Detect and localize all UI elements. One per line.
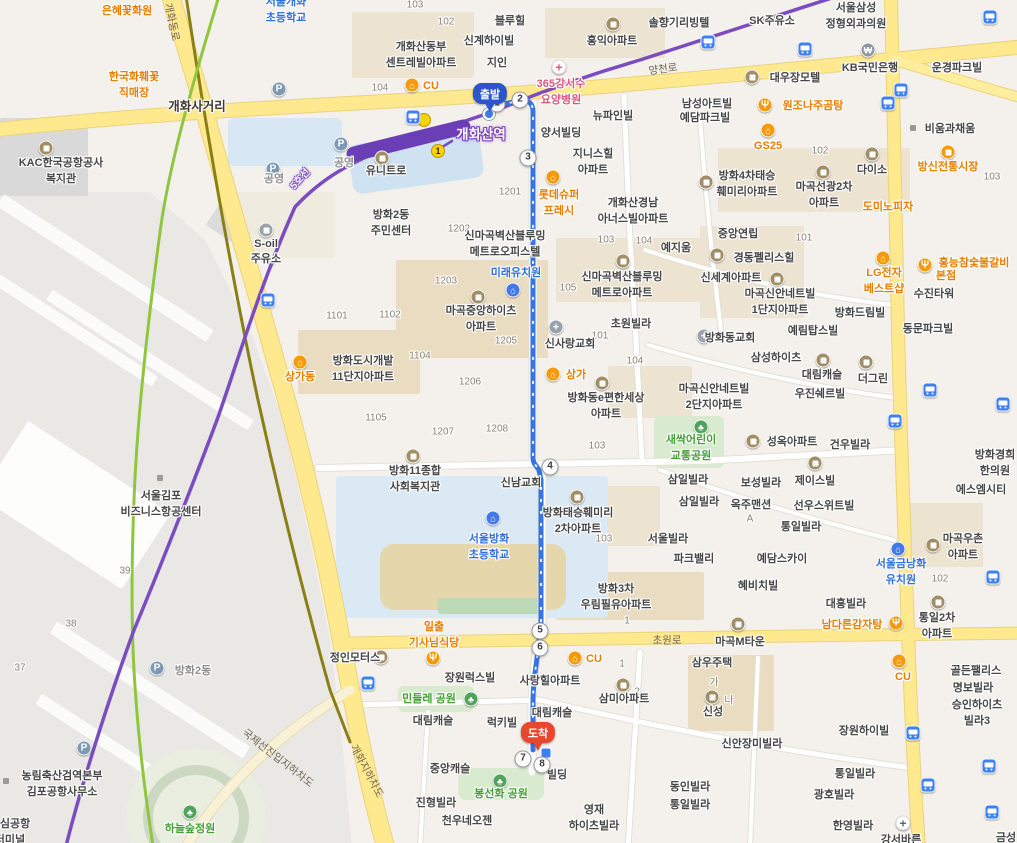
bus-icon[interactable] bbox=[798, 42, 813, 57]
bus-icon[interactable] bbox=[894, 83, 909, 98]
shop-icon[interactable]: ⌂ bbox=[405, 78, 420, 93]
map-label[interactable]: 명보빌라 bbox=[953, 679, 993, 695]
map-label[interactable]: 방화4차태승 훼미리아파트 bbox=[717, 167, 778, 199]
map-label[interactable]: KB국민은행 bbox=[842, 59, 898, 75]
shop-icon[interactable]: ⌂ bbox=[546, 170, 561, 185]
district-label: 공영 bbox=[264, 170, 284, 186]
map-label[interactable]: 경동펠리스힐 bbox=[734, 249, 795, 265]
bus-icon[interactable] bbox=[983, 10, 998, 25]
street bbox=[628, 652, 640, 843]
map-label[interactable]: 봉선화 공원 bbox=[474, 785, 528, 801]
map-label[interactable]: 홍익아파트 bbox=[587, 32, 638, 48]
map-label[interactable]: 파크밸리 bbox=[674, 550, 714, 566]
lot-number-label: 102 bbox=[438, 17, 455, 28]
map-label[interactable]: 도미노피자 bbox=[863, 198, 914, 214]
map-label[interactable]: 서울김포 비즈니스항공센터 bbox=[121, 487, 202, 519]
map-label[interactable]: 지인 bbox=[487, 54, 507, 70]
map-label[interactable]: 대림캐슬 bbox=[532, 704, 572, 720]
bus-icon[interactable] bbox=[986, 570, 1001, 585]
map-label[interactable]: 방화2동 주민센터 bbox=[371, 206, 411, 238]
hosp-icon[interactable]: + bbox=[552, 60, 567, 75]
map-label[interactable]: 마곡중앙하이츠 아파트 bbox=[446, 302, 517, 334]
lot-number-label: 102 bbox=[812, 146, 829, 157]
map-label[interactable]: 통일빌라 bbox=[781, 518, 821, 534]
bus-icon[interactable] bbox=[888, 414, 903, 429]
map-label[interactable]: 옥주맨션 bbox=[731, 496, 771, 512]
map-label[interactable]: 신마곡벽산블루밍 메트로아파트 bbox=[582, 268, 663, 300]
map-label[interactable]: 에스엠시티 bbox=[956, 481, 1007, 497]
map-label[interactable]: 신계하이빌 bbox=[464, 32, 515, 48]
map-label[interactable]: 다이소 bbox=[857, 161, 887, 177]
map-label[interactable]: 골든팰리스 bbox=[951, 662, 1002, 678]
map-label[interactable]: 한국화훼꽃 직매장 bbox=[109, 68, 160, 100]
lot-number-label: 101 bbox=[796, 233, 813, 244]
road-label: 초원로 bbox=[653, 633, 682, 648]
lot-number-label: 103 bbox=[407, 0, 424, 11]
map-label[interactable]: 보성빌라 bbox=[741, 474, 781, 490]
map-label[interactable]: 도심공항 터미널 bbox=[0, 815, 30, 843]
bus-icon[interactable] bbox=[982, 759, 997, 774]
map-label[interactable]: 통일빌라 bbox=[670, 796, 710, 812]
bldg-icon[interactable] bbox=[731, 617, 746, 632]
church-icon[interactable]: + bbox=[549, 320, 564, 335]
bldg-icon[interactable] bbox=[865, 147, 880, 162]
map-label[interactable]: 서울방화 초등학교 bbox=[469, 530, 509, 562]
map-label[interactable]: 선우스위트빌 bbox=[794, 497, 855, 513]
bldg-icon[interactable] bbox=[746, 434, 761, 449]
map-label[interactable]: 신마곡벽산블루밍 메트로오피스텔 bbox=[465, 227, 546, 259]
map-area bbox=[438, 598, 540, 614]
map-label[interactable]: 방화드림빌 bbox=[835, 304, 886, 320]
map-label[interactable]: 마곡신안네트빌 2단지아파트 bbox=[679, 380, 750, 412]
map-label[interactable]: 삼미아파트 bbox=[599, 690, 650, 706]
bus-icon[interactable] bbox=[406, 110, 421, 125]
start-marker-tail-icon bbox=[485, 103, 495, 112]
start-marker-label: 출발 bbox=[473, 83, 507, 104]
lot-number-label: 1 bbox=[624, 616, 630, 627]
map-label[interactable]: 개화산동부 센트레빌아파트 bbox=[386, 38, 457, 70]
map-label[interactable]: 미래유치원 bbox=[491, 264, 542, 280]
lot-number-label: 39 bbox=[119, 566, 130, 577]
school-icon[interactable]: ⌂ bbox=[486, 511, 501, 526]
map-label[interactable]: 예담파크빌 bbox=[680, 109, 731, 125]
map-label[interactable]: 사랑힐아파트 bbox=[520, 672, 581, 688]
lot-number-label: 가 bbox=[709, 674, 718, 689]
rest-icon[interactable]: Ψ bbox=[758, 98, 773, 113]
map-label[interactable]: 장원하이빌 bbox=[839, 722, 890, 738]
bus-icon[interactable] bbox=[996, 397, 1011, 412]
bus-icon[interactable] bbox=[881, 96, 896, 111]
map-label[interactable]: 대흥빌라 bbox=[826, 595, 866, 611]
lot-number-label: 37 bbox=[14, 663, 25, 674]
map-label[interactable]: 삼성하이츠 bbox=[751, 349, 802, 365]
lot-number-label: 1208 bbox=[486, 424, 508, 435]
map-label[interactable]: 365강서수 요양병원 bbox=[537, 75, 586, 107]
map-label[interactable]: 신안장미빌라 bbox=[722, 735, 783, 751]
map-label[interactable]: 빌딩 bbox=[547, 766, 567, 782]
map-label[interactable]: 원조나주곰탕 bbox=[783, 97, 844, 113]
p-icon[interactable]: P bbox=[334, 137, 349, 152]
school-icon[interactable]: ⌂ bbox=[506, 283, 521, 298]
map-label[interactable]: 운경파크빌 bbox=[932, 59, 983, 75]
map-label[interactable]: 예림탑스빌 bbox=[788, 322, 839, 338]
rest-icon[interactable]: Ψ bbox=[889, 616, 904, 631]
map-label[interactable]: SK주유소 bbox=[749, 12, 795, 28]
lot-number-label: 104 bbox=[636, 236, 653, 247]
dot-icon bbox=[910, 125, 916, 131]
lot-number-label: 1101 bbox=[326, 311, 348, 322]
subway-exit-badge: 1 bbox=[431, 144, 445, 158]
map-area bbox=[228, 118, 342, 166]
map-label[interactable]: 마곡신안네트빌 1단지아파트 bbox=[745, 285, 816, 317]
bldg-icon[interactable] bbox=[926, 538, 941, 553]
shop-icon[interactable]: ⌂ bbox=[892, 654, 907, 669]
map-label[interactable]: S-oil 주유소 bbox=[251, 238, 281, 266]
map-label[interactable]: 방화동교회 bbox=[705, 329, 756, 345]
map-label[interactable]: 마곡M타운 bbox=[715, 633, 765, 649]
map-label[interactable]: 광호빌라 bbox=[814, 786, 854, 802]
map-label[interactable]: 서울빌라 bbox=[648, 530, 688, 546]
shop-icon[interactable]: ⌂ bbox=[568, 651, 583, 666]
bus-icon[interactable] bbox=[361, 676, 376, 691]
map-label[interactable]: 남다른감자탕 bbox=[822, 616, 883, 632]
bldg-icon[interactable] bbox=[859, 355, 874, 370]
lot-number-label: 103 bbox=[598, 235, 615, 246]
map-label[interactable]: 신세계아파트 bbox=[701, 269, 762, 285]
shop-icon[interactable]: ⌂ bbox=[546, 367, 561, 382]
end-marker[interactable]: 도착 bbox=[521, 722, 555, 751]
lot-number-label: 102 bbox=[932, 574, 949, 585]
lot-number-label: 104 bbox=[372, 83, 389, 94]
map-label[interactable]: 삼일빌라 bbox=[668, 471, 708, 487]
map-label[interactable]: 대림캐슬 bbox=[802, 366, 842, 382]
bldg-icon[interactable] bbox=[931, 595, 946, 610]
map-label[interactable]: 유니트로 bbox=[366, 162, 406, 178]
district-label: 공영 bbox=[334, 154, 354, 170]
lot-number-label: 1104 bbox=[409, 351, 431, 362]
map-label[interactable]: 본점 bbox=[936, 267, 956, 283]
lot-number-label: 1203 bbox=[435, 276, 457, 287]
map-label[interactable]: 방화경희 한의원 bbox=[975, 446, 1015, 478]
map-label[interactable]: 롯데슈퍼 프레시 bbox=[539, 186, 579, 218]
bus-icon[interactable] bbox=[701, 35, 716, 50]
map-label[interactable]: 우진쉐르빌 bbox=[795, 385, 846, 401]
bldg-icon[interactable] bbox=[606, 17, 621, 32]
lot-number-label: A bbox=[747, 514, 754, 525]
map-label[interactable]: 서울삼성 정형외과의원 bbox=[826, 0, 887, 31]
map-label[interactable]: CU bbox=[423, 80, 439, 92]
map-label[interactable]: 건우빌라 bbox=[830, 436, 870, 452]
map-label[interactable]: 제이스빌 bbox=[795, 472, 835, 488]
lot-number-label: 1201 bbox=[499, 187, 521, 198]
map-label[interactable]: 솔향기리빙텔 bbox=[649, 14, 710, 30]
map-label[interactable]: 상가동 bbox=[285, 368, 315, 384]
map-label[interactable]: 신성 bbox=[703, 703, 723, 719]
map-label[interactable]: 삼일빌라 bbox=[679, 493, 719, 509]
lot-number-label: 1205 bbox=[495, 336, 517, 347]
district-label: 방화2동 bbox=[175, 662, 211, 678]
bus-icon[interactable] bbox=[906, 726, 921, 741]
map-label[interactable]: 서울금낭화 유치원 bbox=[876, 555, 927, 587]
map-label[interactable]: 승인하이츠 빌라3 bbox=[952, 696, 1003, 728]
map-canvas[interactable]: 1PPPPP♣♣♣♣⌂⌂⌂++++₩⌂⌂⌂⌂⌂⌂⌂⌂ΨΨΨΨ 은혜꽃화원한국화훼… bbox=[0, 0, 1017, 843]
map-label[interactable]: 마곡우촌 아파트 bbox=[943, 530, 983, 562]
map-label[interactable]: 신사랑교회 bbox=[545, 335, 596, 351]
tree-icon[interactable]: ♣ bbox=[464, 692, 479, 707]
p-icon[interactable]: P bbox=[272, 82, 287, 97]
map-label[interactable]: 방신전통시장 bbox=[918, 158, 979, 174]
map-label[interactable]: 방화동e편한세상 아파트 bbox=[568, 389, 645, 421]
bus-icon[interactable] bbox=[261, 293, 276, 308]
map-label[interactable]: 럭키빌 bbox=[487, 714, 517, 730]
map-label[interactable]: 지니스힐 아파트 bbox=[573, 145, 613, 177]
map-label[interactable]: 한영빌라 bbox=[833, 817, 873, 833]
bus-icon[interactable] bbox=[923, 383, 938, 398]
bldg-icon[interactable] bbox=[710, 248, 725, 263]
map-label[interactable]: 예담스카이 bbox=[757, 550, 808, 566]
bldg-icon[interactable] bbox=[616, 254, 631, 269]
map-label[interactable]: 민들레 공원 bbox=[402, 690, 456, 706]
map-label[interactable]: 농림축산검역본부 김포공항사무소 bbox=[22, 767, 103, 799]
map-label[interactable]: 동문파크빌 bbox=[903, 320, 954, 336]
map-label[interactable]: 새싹어린이 교통공원 bbox=[666, 431, 717, 463]
map-label[interactable]: 삼우주택 bbox=[692, 654, 732, 670]
map-label[interactable]: 중앙캐슬 bbox=[430, 760, 470, 776]
lot-number-label: 1102 bbox=[379, 310, 401, 321]
map-label[interactable]: KAC한국공항공사 복지관 bbox=[19, 154, 104, 186]
map-label[interactable]: 대우장모텔 bbox=[770, 69, 821, 85]
rest-icon[interactable]: Ψ bbox=[918, 258, 933, 273]
end-marker-label: 도착 bbox=[521, 722, 555, 743]
bus-icon[interactable] bbox=[921, 778, 936, 793]
cross-icon[interactable]: + bbox=[896, 816, 911, 831]
road-label: 개화사거리 bbox=[168, 96, 226, 115]
map-label[interactable]: 진형빌라 bbox=[416, 794, 456, 810]
bldg-icon[interactable] bbox=[808, 456, 823, 471]
map-label[interactable]: 중앙연립 bbox=[718, 225, 758, 241]
lot-number-label: 1 bbox=[619, 659, 625, 670]
map-label[interactable]: 성옥아파트 bbox=[767, 433, 818, 449]
lot-number-label: 1105 bbox=[365, 413, 387, 424]
map-label[interactable]: 통일2차 아파트 bbox=[919, 609, 955, 641]
map-label[interactable]: CU bbox=[895, 671, 911, 683]
bus-icon[interactable] bbox=[985, 805, 1000, 820]
bldg-icon[interactable] bbox=[745, 70, 760, 85]
lot-number-label: 103 bbox=[589, 441, 606, 452]
map-label[interactable]: 장원럭스빌 bbox=[445, 669, 496, 685]
map-label[interactable]: 강서바른 bbox=[881, 831, 921, 843]
start-marker[interactable]: 출발 bbox=[473, 83, 507, 112]
map-label[interactable]: 금성 bbox=[996, 829, 1016, 843]
map-label[interactable]: 개화산경남 아너스빌아파트 bbox=[598, 194, 669, 226]
gas-icon[interactable] bbox=[259, 223, 274, 238]
lot-number-label: 104 bbox=[627, 356, 644, 367]
map-label[interactable]: 동인빌라 bbox=[670, 778, 710, 794]
bldg-icon[interactable] bbox=[570, 490, 585, 505]
map-label[interactable]: 수진타워 bbox=[914, 285, 954, 301]
map-label[interactable]: 방화도시개발 11단지아파트 bbox=[332, 352, 394, 384]
p-icon[interactable]: P bbox=[77, 741, 92, 756]
map-label[interactable]: 대림캐슬 bbox=[413, 712, 453, 728]
map-label[interactable]: 정인모터스 bbox=[330, 649, 381, 665]
lot-number-label: 나 bbox=[724, 692, 733, 707]
lot-number-label: 1207 bbox=[432, 427, 454, 438]
end-marker-tail-icon bbox=[533, 742, 543, 751]
map-label[interactable]: GS25 bbox=[754, 140, 782, 152]
shop-icon[interactable]: ⌂ bbox=[761, 123, 776, 138]
map-label[interactable]: 상가 bbox=[566, 366, 586, 382]
dot-icon bbox=[3, 778, 9, 784]
map-label[interactable]: 신남교회 bbox=[501, 474, 541, 490]
map-label[interactable]: 마곡선광2차 아파트 bbox=[796, 178, 853, 210]
lot-number-label: 1206 bbox=[459, 377, 481, 388]
dot-icon bbox=[157, 475, 163, 481]
lot-number-label: 103 bbox=[984, 172, 1001, 183]
map-label[interactable]: LG전자 베스트샵 bbox=[864, 264, 904, 296]
map-label[interactable]: 방화11종합 사회복지관 bbox=[389, 462, 441, 494]
rest-icon[interactable]: Ψ bbox=[426, 651, 441, 666]
map-label[interactable]: 비움과채움 bbox=[925, 120, 976, 136]
map-label[interactable]: 블루힐 bbox=[495, 12, 525, 28]
map-label[interactable]: 영재 하이츠빌라 bbox=[569, 801, 620, 833]
map-label[interactable]: 더그린 bbox=[858, 370, 888, 386]
map-label[interactable]: 초원빌라 bbox=[611, 315, 651, 331]
map-label[interactable]: 방화태승훼미리 2차아파트 bbox=[543, 504, 614, 536]
lot-number-label: 38 bbox=[65, 619, 76, 630]
map-label[interactable]: 양서빌딩 bbox=[541, 124, 581, 140]
lot-number-label: 105 bbox=[560, 283, 577, 294]
tree-icon[interactable]: ♣ bbox=[183, 805, 198, 820]
bldg-icon[interactable] bbox=[699, 175, 714, 190]
map-label[interactable]: 일출 기사님식당 bbox=[409, 618, 460, 650]
map-label[interactable]: 하늘숲정원 bbox=[165, 820, 216, 836]
p-icon[interactable]: P bbox=[150, 661, 165, 676]
map-label[interactable]: 은혜꽃화원 bbox=[102, 2, 153, 18]
map-label[interactable]: 서울개화 초등학교 bbox=[266, 0, 306, 25]
map-label[interactable]: 예지움 bbox=[661, 239, 691, 255]
map-label[interactable]: 뉴파인빌 bbox=[593, 107, 633, 123]
map-label[interactable]: 방화3차 우림필유아파트 bbox=[581, 580, 652, 612]
map-label[interactable]: CU bbox=[586, 653, 602, 665]
map-label[interactable]: 천우네오젠 bbox=[442, 812, 493, 828]
bank-icon[interactable]: ₩ bbox=[861, 43, 876, 58]
map-label[interactable]: 혜비치빌 bbox=[738, 577, 778, 593]
map-label[interactable]: 통일빌라 bbox=[835, 765, 875, 781]
